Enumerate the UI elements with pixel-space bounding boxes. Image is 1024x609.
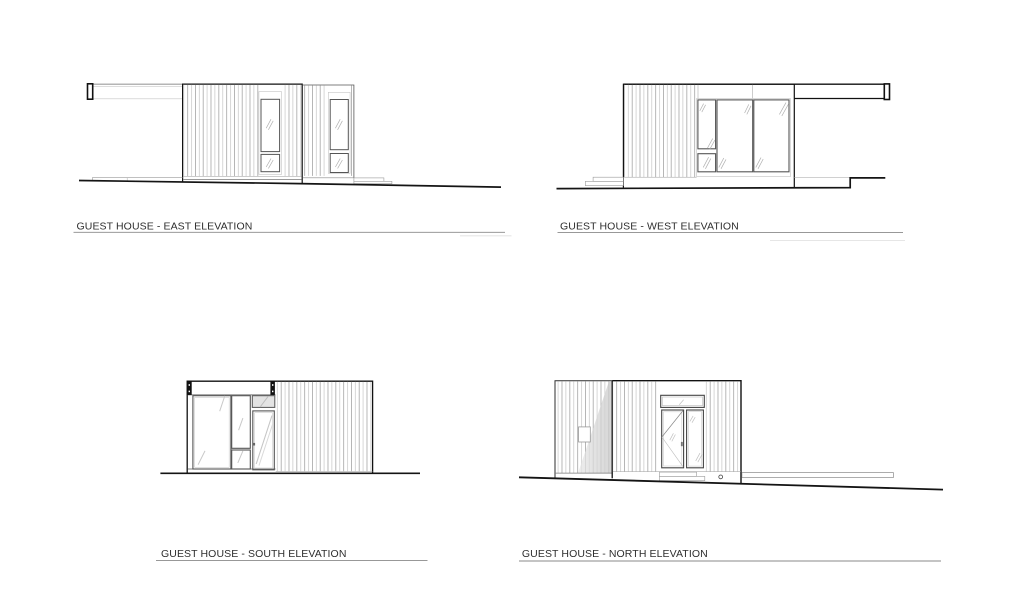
svg-text:GUEST HOUSE - EAST ELEVATION: GUEST HOUSE - EAST ELEVATION — [77, 220, 253, 232]
svg-text:GUEST HOUSE - NORTH ELEVATION: GUEST HOUSE - NORTH ELEVATION — [522, 548, 708, 560]
svg-text:GUEST HOUSE - SOUTH ELEVATION: GUEST HOUSE - SOUTH ELEVATION — [161, 548, 347, 560]
svg-text:GUEST HOUSE - WEST ELEVATION: GUEST HOUSE - WEST ELEVATION — [560, 220, 739, 232]
